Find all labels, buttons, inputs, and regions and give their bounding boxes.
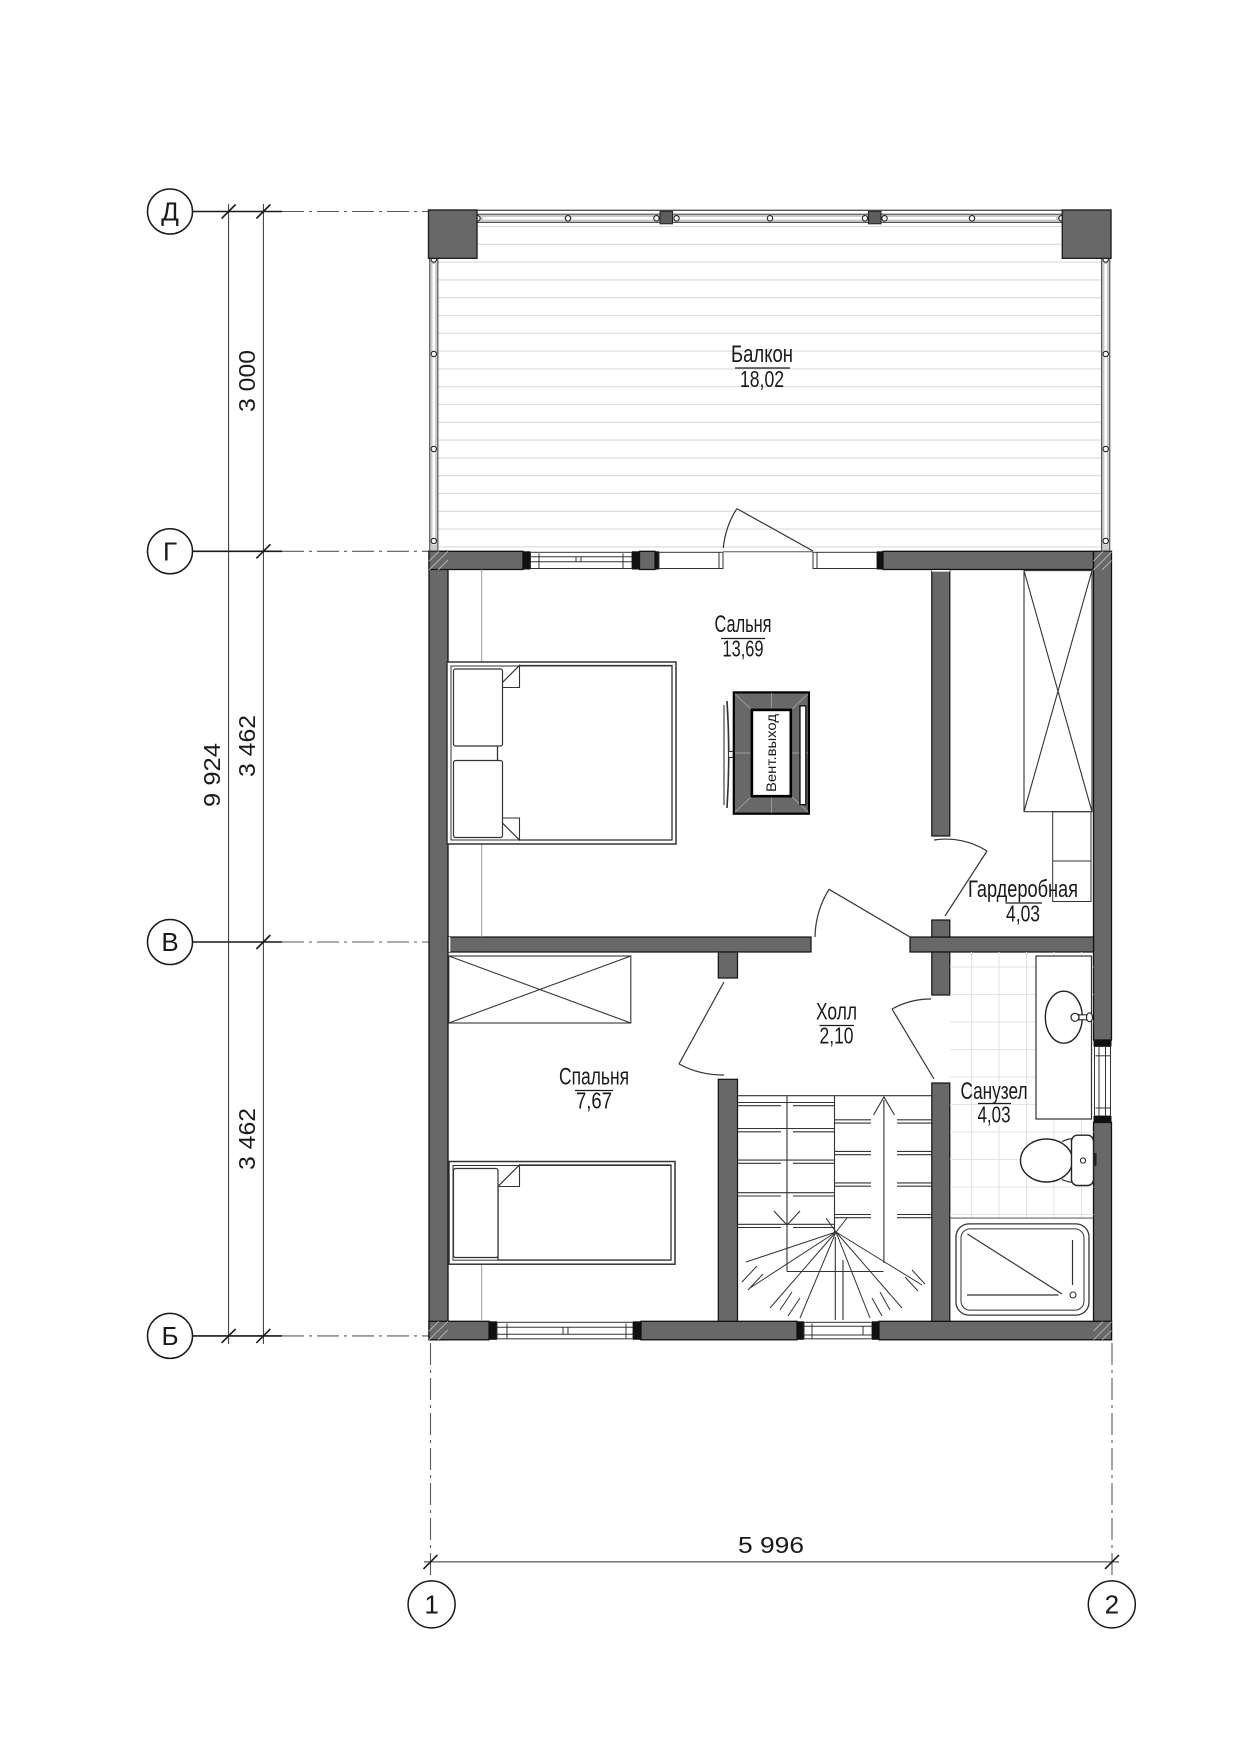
svg-text:4,03: 4,03 xyxy=(978,1102,1011,1128)
svg-text:Балкон: Балкон xyxy=(731,341,793,368)
svg-text:13,69: 13,69 xyxy=(723,636,764,662)
svg-text:5 996: 5 996 xyxy=(738,1532,804,1558)
svg-text:Сальня: Сальня xyxy=(715,611,772,638)
svg-text:3 462: 3 462 xyxy=(234,1108,260,1170)
svg-text:В: В xyxy=(161,927,178,957)
svg-text:7,67: 7,67 xyxy=(576,1088,612,1114)
svg-text:9 924: 9 924 xyxy=(199,743,225,807)
svg-text:Г: Г xyxy=(163,536,177,566)
svg-text:3 462: 3 462 xyxy=(234,715,260,777)
svg-text:Вент.выход: Вент.выход xyxy=(764,714,779,792)
svg-text:2,10: 2,10 xyxy=(820,1023,854,1049)
svg-text:Спальня: Спальня xyxy=(559,1064,629,1091)
svg-text:1: 1 xyxy=(424,1589,438,1619)
svg-text:3 000: 3 000 xyxy=(234,350,260,412)
svg-text:4,03: 4,03 xyxy=(1006,901,1040,927)
svg-text:Б: Б xyxy=(161,1321,178,1351)
svg-text:2: 2 xyxy=(1105,1589,1119,1619)
svg-text:Д: Д xyxy=(161,197,179,227)
svg-text:Холл: Холл xyxy=(816,999,857,1026)
svg-text:Гардеробная: Гардеробная xyxy=(968,876,1078,903)
svg-text:18,02: 18,02 xyxy=(740,366,784,392)
